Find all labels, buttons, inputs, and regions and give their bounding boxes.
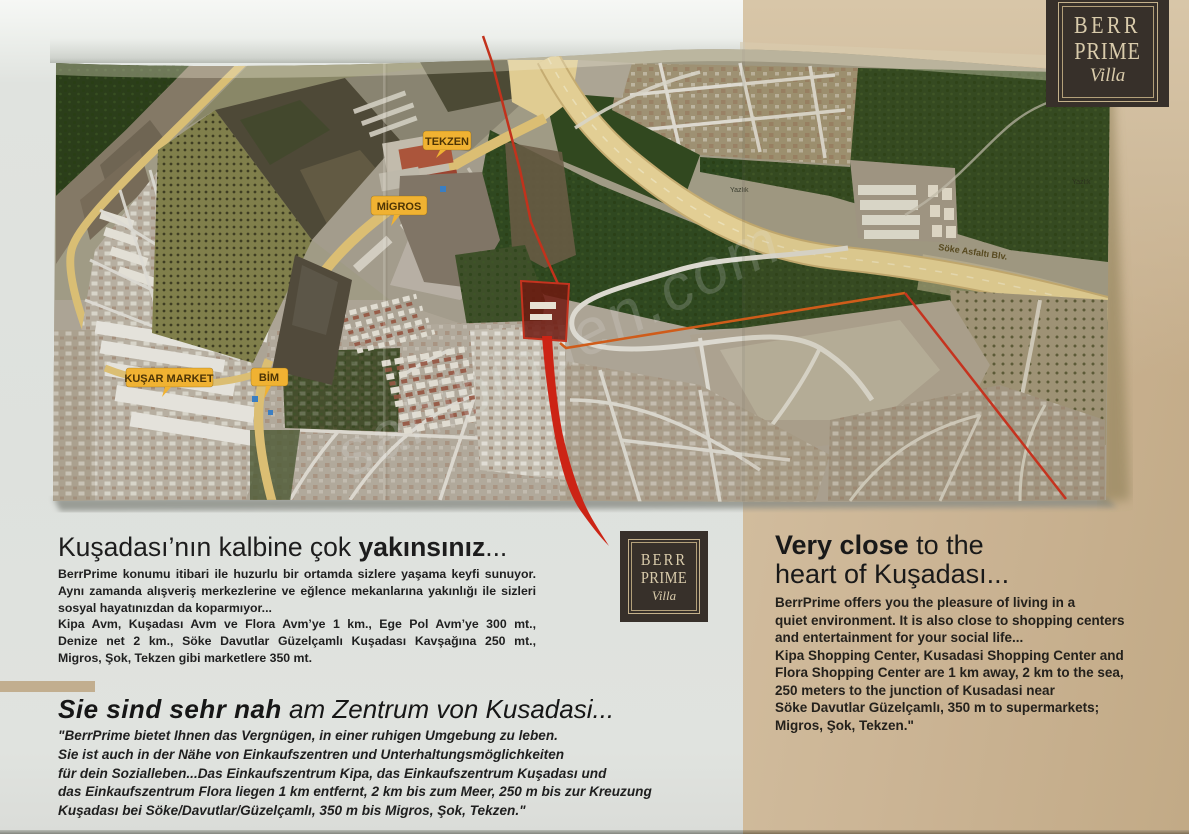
svg-text:TEKZEN: TEKZEN: [425, 136, 469, 148]
svg-text:MİGROS: MİGROS: [377, 200, 422, 213]
svg-text:KUŞAR MARKET: KUŞAR MARKET: [124, 373, 214, 385]
svg-text:BİM: BİM: [259, 371, 279, 384]
